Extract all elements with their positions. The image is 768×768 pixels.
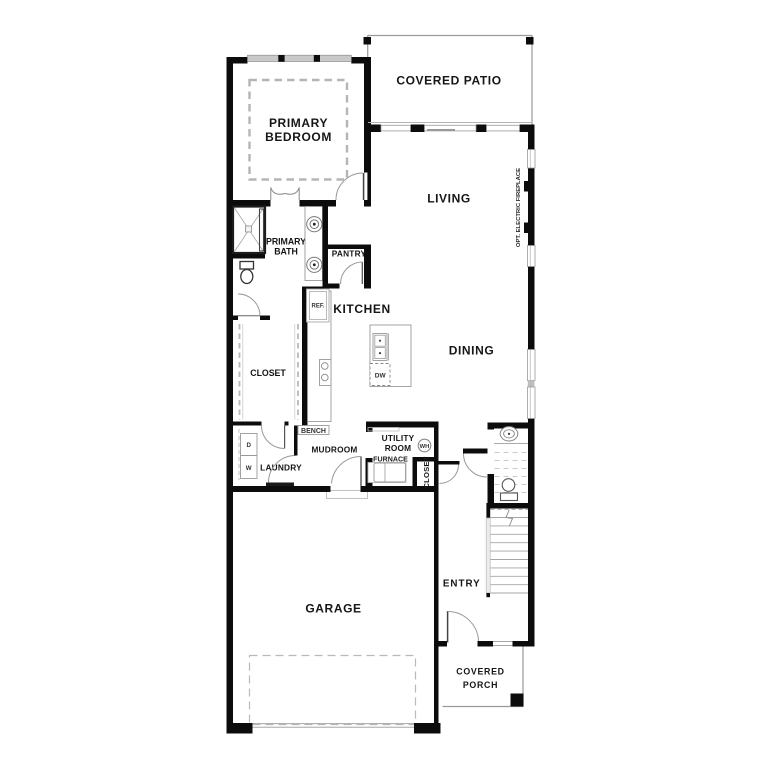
svg-text:ROOM: ROOM (385, 443, 412, 453)
svg-text:W: W (246, 465, 252, 472)
svg-text:PANTRY: PANTRY (332, 249, 367, 259)
svg-text:REF.: REF. (311, 304, 324, 310)
svg-text:LAUNDRY: LAUNDRY (260, 463, 302, 473)
svg-text:LIVING: LIVING (427, 192, 471, 206)
svg-text:GARAGE: GARAGE (305, 602, 361, 616)
svg-text:CLOSET: CLOSET (422, 456, 431, 488)
svg-text:COVERED: COVERED (456, 667, 504, 677)
svg-text:KITCHEN: KITCHEN (333, 302, 391, 316)
svg-text:WH: WH (420, 444, 430, 450)
svg-text:PRIMARY: PRIMARY (266, 237, 306, 247)
svg-text:UTILITY: UTILITY (382, 433, 415, 443)
svg-text:BENCH: BENCH (301, 428, 326, 435)
svg-text:MUDROOM: MUDROOM (311, 445, 357, 455)
svg-text:BEDROOM: BEDROOM (265, 130, 332, 144)
svg-text:DINING: DINING (449, 344, 495, 358)
svg-text:BATH: BATH (274, 247, 298, 257)
svg-text:DW: DW (375, 373, 387, 380)
svg-text:CLOSET: CLOSET (250, 368, 286, 378)
svg-text:PORCH: PORCH (463, 680, 498, 690)
svg-text:PRIMARY: PRIMARY (269, 116, 328, 130)
svg-text:COVERED PATIO: COVERED PATIO (396, 74, 501, 88)
svg-text:OPT. ELECTRIC FIREPLACE: OPT. ELECTRIC FIREPLACE (516, 168, 522, 247)
svg-text:ENTRY: ENTRY (443, 579, 481, 590)
svg-text:D: D (246, 442, 251, 449)
